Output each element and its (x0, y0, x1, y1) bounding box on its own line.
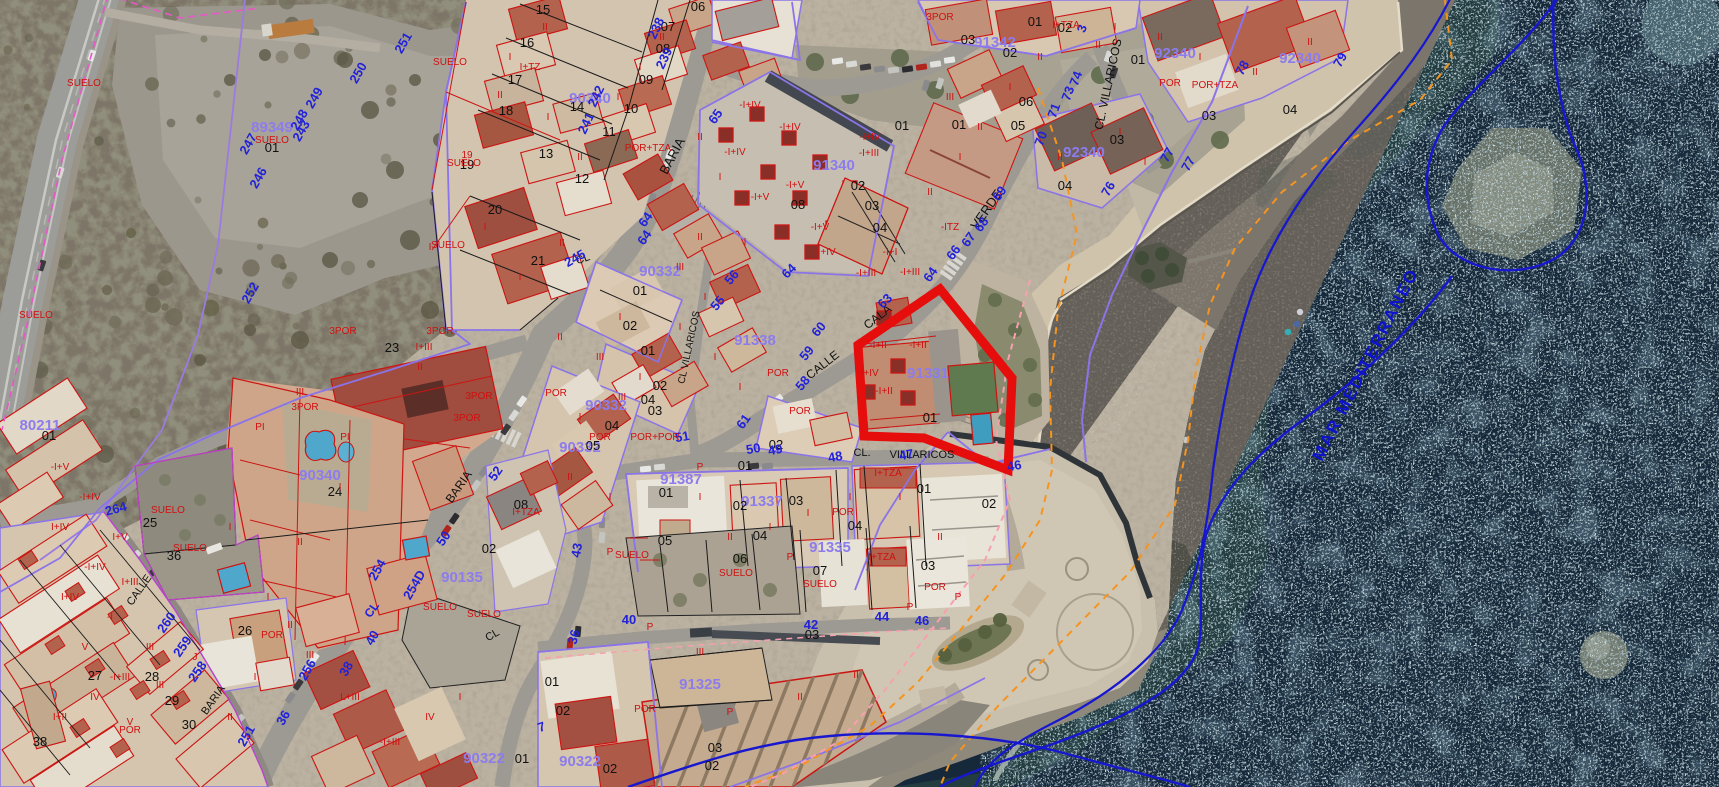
svg-text:POR: POR (789, 406, 811, 417)
svg-text:POR: POR (924, 582, 946, 593)
svg-text:I: I (459, 692, 462, 703)
svg-text:II: II (557, 332, 563, 343)
svg-text:III: III (696, 647, 704, 658)
svg-text:III: III (156, 680, 164, 691)
svg-text:-I+II: -I+II (909, 340, 927, 351)
svg-text:-I+IV: -I+IV (859, 132, 881, 143)
svg-text:P: P (647, 622, 654, 633)
svg-text:-I+IV: -I+IV (857, 368, 879, 379)
svg-text:I: I (639, 62, 642, 73)
svg-text:I: I (267, 592, 270, 603)
svg-text:II: II (659, 32, 665, 43)
svg-text:29: 29 (165, 693, 179, 708)
svg-text:II: II (227, 712, 233, 723)
svg-text:II: II (567, 472, 573, 483)
svg-text:16: 16 (520, 35, 534, 50)
svg-text:II: II (1307, 37, 1313, 48)
svg-text:POR: POR (261, 630, 283, 641)
svg-text:07: 07 (813, 563, 827, 578)
svg-text:-I+III: -I+III (859, 148, 879, 159)
svg-text:POR+POR: POR+POR (630, 432, 679, 443)
svg-text:II: II (1037, 52, 1043, 63)
svg-text:I: I (619, 312, 622, 323)
svg-text:III: III (618, 392, 626, 403)
svg-text:SUELO: SUELO (433, 57, 467, 68)
svg-text:3POR: 3POR (291, 402, 318, 413)
svg-text:III: III (306, 650, 314, 661)
svg-text:-I+III: -I+III (900, 267, 920, 278)
svg-text:L+III: L+III (340, 692, 360, 703)
svg-text:02: 02 (733, 498, 747, 513)
svg-text:13: 13 (539, 146, 553, 161)
svg-text:01: 01 (923, 410, 937, 425)
svg-text:01: 01 (952, 117, 966, 132)
svg-text:II: II (497, 90, 503, 101)
svg-text:I+TZA: I+TZA (868, 552, 896, 563)
svg-text:II: II (559, 238, 565, 249)
svg-text:23: 23 (385, 340, 399, 355)
svg-text:II: II (853, 670, 859, 681)
svg-text:I: I (679, 322, 682, 333)
svg-text:III: III (146, 642, 154, 653)
svg-text:04: 04 (605, 418, 619, 433)
svg-text:II: II (297, 537, 303, 548)
svg-text:POR+TZA: POR+TZA (625, 143, 672, 154)
svg-text:SUELO: SUELO (803, 579, 837, 590)
svg-text:03: 03 (921, 558, 935, 573)
svg-text:I: I (1144, 157, 1147, 168)
svg-text:I: I (744, 237, 747, 248)
svg-text:-I: -I (107, 612, 113, 623)
svg-text:I: I (509, 52, 512, 63)
svg-text:II: II (727, 532, 733, 543)
svg-text:02: 02 (482, 541, 496, 556)
svg-text:III: III (296, 387, 304, 398)
svg-text:01: 01 (917, 481, 931, 496)
svg-text:J: J (193, 652, 198, 663)
svg-text:08: 08 (791, 197, 805, 212)
svg-text:-I+IV: -I+IV (79, 492, 101, 503)
svg-text:SUELO: SUELO (173, 543, 207, 554)
svg-text:43: 43 (568, 542, 585, 559)
svg-text:01: 01 (545, 674, 559, 689)
svg-text:91325: 91325 (679, 676, 721, 693)
svg-text:I: I (339, 482, 342, 493)
svg-text:30: 30 (182, 717, 196, 732)
svg-text:04: 04 (753, 528, 767, 543)
svg-text:03: 03 (961, 32, 975, 47)
svg-text:92340: 92340 (1279, 50, 1321, 67)
svg-text:I: I (769, 522, 772, 533)
svg-text:I+TZA: I+TZA (1052, 20, 1080, 31)
svg-text:-I+V: -I+V (751, 192, 770, 203)
svg-text:02: 02 (982, 496, 996, 511)
svg-text:46: 46 (915, 613, 929, 628)
svg-text:04: 04 (873, 220, 887, 235)
svg-text:PI: PI (340, 432, 349, 443)
svg-text:SUELO: SUELO (423, 602, 457, 613)
svg-text:POR: POR (589, 432, 611, 443)
svg-text:I: I (704, 292, 707, 303)
svg-text:92340: 92340 (1154, 45, 1196, 62)
svg-text:II: II (1157, 32, 1163, 43)
svg-text:I+TZ: I+TZ (520, 62, 541, 73)
svg-text:03: 03 (789, 493, 803, 508)
svg-text:01: 01 (42, 428, 56, 443)
svg-text:I: I (484, 222, 487, 233)
svg-text:-I+III: -I+III (856, 268, 876, 279)
svg-text:III: III (596, 352, 604, 363)
svg-text:03: 03 (708, 740, 722, 755)
svg-text:V: V (127, 717, 134, 728)
svg-text:POR: POR (545, 388, 567, 399)
svg-text:II: II (697, 132, 703, 143)
svg-text:49: 49 (767, 441, 784, 458)
svg-text:I+IV: I+IV (61, 592, 79, 603)
svg-text:03: 03 (1202, 108, 1216, 123)
svg-text:POR: POR (1159, 78, 1181, 89)
svg-text:02: 02 (556, 703, 570, 718)
svg-text:3POR: 3POR (453, 413, 480, 424)
svg-text:P: P (907, 602, 914, 613)
svg-text:91337: 91337 (741, 493, 783, 510)
svg-text:I: I (1009, 82, 1012, 93)
svg-text:21: 21 (531, 253, 545, 268)
svg-text:06: 06 (733, 551, 747, 566)
svg-text:II: II (1252, 67, 1258, 78)
svg-text:II: II (977, 122, 983, 133)
svg-text:02: 02 (653, 378, 667, 393)
svg-text:3POR: 3POR (426, 326, 453, 337)
svg-text:I: I (254, 672, 257, 683)
svg-text:03: 03 (865, 198, 879, 213)
svg-text:-I+IV: -I+IV (814, 247, 836, 258)
svg-text:11: 11 (602, 124, 616, 139)
svg-text:SUELO: SUELO (719, 568, 753, 579)
svg-text:89349: 89349 (251, 119, 293, 136)
svg-text:-I+II: -I+II (869, 340, 887, 351)
svg-text:12: 12 (575, 171, 589, 186)
svg-text:SUELO: SUELO (19, 310, 53, 321)
svg-text:I: I (1114, 22, 1117, 33)
svg-text:38: 38 (33, 734, 47, 749)
svg-text:I: I (849, 492, 852, 503)
svg-text:-I+IV: -I+IV (779, 122, 801, 133)
svg-text:50: 50 (745, 440, 762, 457)
svg-text:01: 01 (659, 485, 673, 500)
svg-text:04: 04 (1058, 178, 1072, 193)
svg-text:-I+V: -I+V (51, 462, 70, 473)
svg-text:47: 47 (898, 446, 915, 463)
svg-text:II: II (1057, 152, 1063, 163)
svg-text:I: I (739, 382, 742, 393)
svg-text:91335: 91335 (809, 539, 851, 556)
svg-text:POR: POR (832, 507, 854, 518)
svg-text:SUELO: SUELO (67, 78, 101, 89)
svg-text:10: 10 (624, 101, 638, 116)
svg-text:-I+I: -I+I (883, 247, 898, 258)
svg-text:09: 09 (639, 72, 653, 87)
svg-text:25: 25 (143, 515, 157, 530)
svg-text:15: 15 (536, 2, 550, 17)
svg-text:I: I (719, 172, 722, 183)
svg-text:05: 05 (658, 533, 672, 548)
svg-text:01: 01 (738, 458, 752, 473)
svg-text:I: I (617, 92, 620, 103)
svg-text:I+III: I+III (416, 342, 433, 353)
svg-text:-I+IV: -I+IV (739, 100, 761, 111)
svg-text:-ITZ: -ITZ (941, 222, 959, 233)
svg-text:46: 46 (1006, 457, 1023, 474)
svg-text:II: II (937, 532, 943, 543)
svg-text:P: P (697, 462, 704, 473)
svg-text:02: 02 (623, 318, 637, 333)
svg-text:90332: 90332 (639, 263, 681, 280)
svg-text:-I+V: -I+V (811, 222, 830, 233)
svg-text:20: 20 (488, 202, 502, 217)
svg-text:05: 05 (1011, 118, 1025, 133)
svg-text:SUELO: SUELO (255, 135, 289, 146)
svg-text:I: I (807, 508, 810, 519)
svg-text:90322: 90322 (463, 750, 505, 767)
svg-text:IV: IV (90, 692, 100, 703)
svg-text:II: II (1095, 40, 1101, 51)
svg-text:3POR: 3POR (329, 326, 356, 337)
svg-text:91340: 91340 (813, 157, 855, 174)
svg-text:02: 02 (603, 761, 617, 776)
svg-text:I: I (699, 492, 702, 503)
svg-text:II: II (417, 362, 423, 373)
svg-text:27: 27 (88, 668, 102, 683)
svg-text:92340: 92340 (1063, 144, 1105, 161)
svg-text:II: II (577, 152, 583, 163)
svg-text:03: 03 (1110, 132, 1124, 147)
svg-text:-I+IV: -I+IV (84, 562, 106, 573)
svg-text:01: 01 (515, 751, 529, 766)
svg-text:90340: 90340 (299, 467, 341, 484)
svg-text:I: I (959, 152, 962, 163)
svg-text:II: II (542, 22, 548, 33)
svg-text:06: 06 (691, 0, 705, 14)
svg-text:SUELO: SUELO (467, 609, 501, 620)
svg-text:06: 06 (1019, 94, 1033, 109)
svg-text:I: I (899, 492, 902, 503)
svg-text:42: 42 (804, 617, 818, 632)
svg-text:I+TZA: I+TZA (512, 507, 540, 518)
svg-text:17: 17 (508, 72, 522, 87)
svg-text:I+III: I+III (122, 577, 139, 588)
svg-text:II: II (927, 187, 933, 198)
svg-text:I+II: I+II (53, 712, 67, 723)
svg-text:91338: 91338 (734, 332, 776, 349)
svg-text:04: 04 (641, 392, 655, 407)
svg-text:III: III (946, 92, 954, 103)
svg-text:POR: POR (767, 368, 789, 379)
svg-text:I: I (639, 372, 642, 383)
svg-text:48: 48 (827, 448, 844, 465)
svg-text:P: P (727, 707, 734, 718)
svg-text:SUELO: SUELO (151, 505, 185, 516)
svg-text:-I+III: -I+III (380, 737, 400, 748)
svg-text:-I+III: -I+III (110, 672, 130, 683)
svg-text:44: 44 (875, 609, 890, 624)
svg-text:I+TZA: I+TZA (874, 468, 902, 479)
svg-text:02: 02 (705, 758, 719, 773)
svg-text:I: I (579, 412, 582, 423)
svg-text:I: I (1199, 52, 1202, 63)
svg-text:01: 01 (641, 343, 655, 358)
svg-text:40: 40 (622, 612, 636, 627)
svg-text:SUELO: SUELO (431, 240, 465, 251)
svg-text:I: I (429, 242, 432, 253)
svg-text:V: V (82, 642, 89, 653)
svg-text:02: 02 (851, 178, 865, 193)
svg-text:-I+IV: -I+IV (724, 147, 746, 158)
svg-text:III: III (676, 262, 684, 273)
svg-text:SUELO: SUELO (615, 550, 649, 561)
svg-text:90322: 90322 (559, 753, 601, 770)
svg-text:CL.: CL. (853, 447, 870, 459)
svg-text:26: 26 (238, 623, 252, 638)
svg-text:I+V: I+V (112, 532, 128, 543)
svg-text:3POR: 3POR (926, 12, 953, 23)
svg-text:-I+II: -I+II (875, 386, 893, 397)
svg-text:PI: PI (255, 422, 264, 433)
svg-text:01: 01 (633, 283, 647, 298)
svg-text:POR+TZA: POR+TZA (1192, 80, 1239, 91)
svg-text:19: 19 (461, 150, 473, 161)
svg-text:3POR: 3POR (465, 391, 492, 402)
svg-text:II: II (797, 692, 803, 703)
svg-text:I: I (1119, 127, 1122, 138)
svg-text:I: I (547, 112, 550, 123)
svg-text:18: 18 (499, 103, 513, 118)
svg-text:P: P (607, 547, 614, 558)
svg-text:I+IV: I+IV (51, 522, 69, 533)
svg-text:I: I (714, 352, 717, 363)
svg-text:02: 02 (1003, 45, 1017, 60)
svg-text:POR: POR (634, 704, 656, 715)
svg-text:04: 04 (848, 518, 862, 533)
svg-text:01: 01 (1028, 14, 1042, 29)
svg-text:II: II (697, 232, 703, 243)
svg-text:I: I (229, 522, 232, 533)
svg-text:I: I (519, 272, 522, 283)
svg-text:-I+V: -I+V (786, 180, 805, 191)
svg-text:90135: 90135 (441, 569, 483, 586)
svg-text:01: 01 (1131, 52, 1145, 67)
svg-text:P: P (787, 552, 794, 563)
svg-text:01: 01 (895, 118, 909, 133)
svg-text:04: 04 (1283, 102, 1297, 117)
svg-text:II: II (287, 620, 293, 631)
svg-text:I: I (609, 492, 612, 503)
svg-text:P: P (955, 592, 962, 603)
svg-text:91331: 91331 (907, 365, 949, 382)
svg-text:IV: IV (425, 712, 435, 723)
